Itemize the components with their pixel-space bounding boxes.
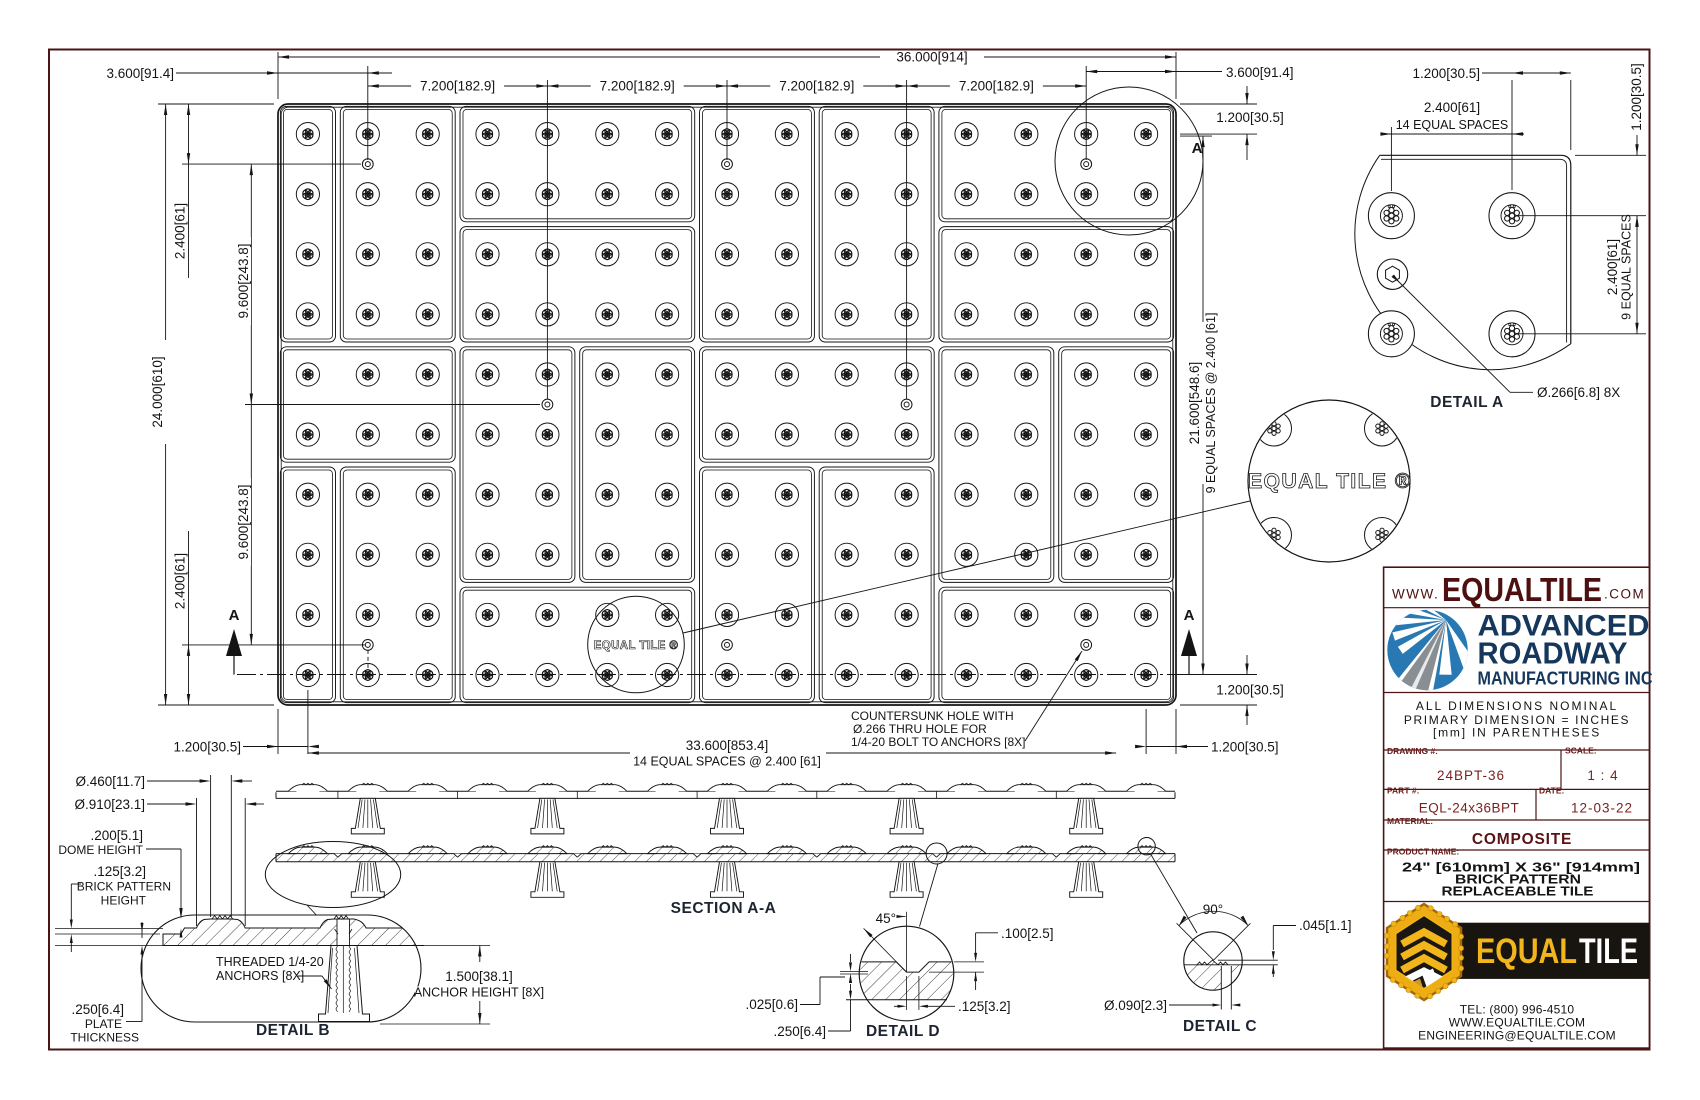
- svg-text:24.000[610]: 24.000[610]: [150, 356, 165, 427]
- svg-text:.250[6.4]: .250[6.4]: [71, 1002, 124, 1017]
- svg-text:2.400[61]: 2.400[61]: [1605, 239, 1620, 295]
- svg-text:DETAIL A: DETAIL A: [1430, 394, 1503, 411]
- svg-text:THICKNESS: THICKNESS: [70, 1031, 139, 1045]
- svg-text:DATE:: DATE:: [1539, 786, 1565, 796]
- svg-text:1.500[38.1]: 1.500[38.1]: [445, 969, 513, 984]
- svg-text:24BPT-36: 24BPT-36: [1437, 768, 1505, 783]
- svg-text:ENGINEERING@EQUALTILE.COM: ENGINEERING@EQUALTILE.COM: [1418, 1029, 1616, 1043]
- svg-text:1/4-20 BOLT TO ANCHORS [8X]: 1/4-20 BOLT TO ANCHORS [8X]: [851, 735, 1026, 749]
- svg-text:1.200[30.5]: 1.200[30.5]: [173, 740, 241, 755]
- svg-text:1.200[30.5]: 1.200[30.5]: [1216, 683, 1284, 698]
- svg-text:DETAIL D: DETAIL D: [866, 1023, 940, 1040]
- svg-text:SECTION A-A: SECTION A-A: [671, 900, 777, 917]
- svg-text:WWW.EQUALTILE.COM: WWW.EQUALTILE.COM: [1449, 1016, 1586, 1030]
- svg-text:Ø.266[6.8] 8X: Ø.266[6.8] 8X: [1537, 385, 1620, 400]
- svg-text:90°: 90°: [1203, 902, 1223, 917]
- svg-text:Ø.910[23.1]: Ø.910[23.1]: [74, 797, 145, 812]
- svg-text:7.200[182.9]: 7.200[182.9]: [600, 79, 675, 94]
- svg-text:14 EQUAL SPACES @ 2.400 [61]: 14 EQUAL SPACES @ 2.400 [61]: [633, 755, 821, 769]
- svg-text:ANCHORS [8X]: ANCHORS [8X]: [216, 969, 304, 983]
- svg-text:12-03-22: 12-03-22: [1571, 801, 1633, 816]
- svg-text:2.400[61]: 2.400[61]: [1424, 100, 1480, 115]
- svg-text:EQUAL: EQUAL: [1476, 932, 1577, 971]
- svg-text:PLATE: PLATE: [85, 1017, 122, 1031]
- svg-text:MATERIAL:: MATERIAL:: [1387, 816, 1433, 826]
- svg-text:ANCHOR HEIGHT [8X]: ANCHOR HEIGHT [8X]: [414, 986, 544, 1000]
- svg-text:7.200[182.9]: 7.200[182.9]: [959, 79, 1034, 94]
- svg-text:.250[6.4]: .250[6.4]: [773, 1024, 826, 1039]
- svg-text:PRODUCT NAME:: PRODUCT NAME:: [1387, 847, 1459, 857]
- svg-text:1 : 4: 1 : 4: [1587, 768, 1618, 783]
- svg-text:A: A: [1192, 140, 1203, 157]
- svg-text:ROADWAY: ROADWAY: [1478, 636, 1628, 671]
- svg-text:DETAIL B: DETAIL B: [256, 1022, 330, 1039]
- svg-text:DRAWING #:: DRAWING #:: [1387, 746, 1438, 756]
- svg-text:9 EQUAL SPACES @ 2.400 [61]: 9 EQUAL SPACES @ 2.400 [61]: [1204, 313, 1218, 494]
- svg-text:3.600[91.4]: 3.600[91.4]: [106, 66, 174, 81]
- svg-text:THREADED 1/4-20: THREADED 1/4-20: [216, 955, 324, 969]
- svg-text:COUNTERSUNK HOLE WITH: COUNTERSUNK HOLE WITH: [851, 709, 1014, 723]
- svg-text:DOME HEIGHT: DOME HEIGHT: [58, 843, 143, 857]
- svg-text:14 EQUAL SPACES: 14 EQUAL SPACES: [1396, 118, 1509, 132]
- svg-text:.200[5.1]: .200[5.1]: [90, 828, 143, 843]
- svg-text:REPLACEABLE TILE: REPLACEABLE TILE: [1442, 884, 1594, 899]
- svg-text:COMPOSITE: COMPOSITE: [1472, 831, 1572, 848]
- svg-text:.100[2.5]: .100[2.5]: [1001, 926, 1054, 941]
- svg-text:1.200[30.5]: 1.200[30.5]: [1629, 63, 1644, 131]
- svg-text:45°: 45°: [876, 911, 896, 926]
- svg-text:2.400[61]: 2.400[61]: [173, 553, 188, 609]
- svg-text:3.600[91.4]: 3.600[91.4]: [1226, 65, 1294, 80]
- svg-text:7.200[182.9]: 7.200[182.9]: [779, 79, 854, 94]
- svg-text:TEL: (800) 996-4510: TEL: (800) 996-4510: [1460, 1003, 1575, 1017]
- svg-text:A: A: [1184, 607, 1195, 624]
- svg-text:DETAIL C: DETAIL C: [1183, 1018, 1257, 1035]
- svg-text:9 EQUAL SPACES: 9 EQUAL SPACES: [1620, 214, 1634, 320]
- svg-text:EQUAL TILE ®: EQUAL TILE ®: [594, 640, 679, 652]
- svg-text:.COM: .COM: [1604, 587, 1645, 602]
- svg-text:Ø.090[2.3]: Ø.090[2.3]: [1104, 998, 1167, 1013]
- svg-text:.125[3.2]: .125[3.2]: [93, 864, 146, 879]
- svg-text:EQUAL TILE ®: EQUAL TILE ®: [1248, 470, 1412, 493]
- svg-text:SCALE:: SCALE:: [1565, 746, 1597, 756]
- svg-text:ALL DIMENSIONS NOMINAL: ALL DIMENSIONS NOMINAL: [1416, 699, 1618, 713]
- svg-text:TILE: TILE: [1579, 932, 1638, 971]
- svg-text:A: A: [229, 607, 240, 624]
- svg-text:9.600[243.8]: 9.600[243.8]: [236, 484, 251, 559]
- svg-text:PART #:: PART #:: [1387, 786, 1420, 796]
- svg-text:[mm] IN PARENTHESES: [mm] IN PARENTHESES: [1433, 726, 1601, 740]
- svg-text:.025[0.6]: .025[0.6]: [745, 997, 798, 1012]
- svg-text:1.200[30.5]: 1.200[30.5]: [1211, 740, 1279, 755]
- svg-text:WWW.: WWW.: [1392, 587, 1439, 602]
- svg-text:1.200[30.5]: 1.200[30.5]: [1216, 110, 1284, 125]
- svg-text:MANUFACTURING INC: MANUFACTURING INC: [1478, 668, 1653, 689]
- svg-text:Ø.460[11.7]: Ø.460[11.7]: [75, 774, 145, 789]
- svg-text:1.200[30.5]: 1.200[30.5]: [1412, 66, 1480, 81]
- svg-text:Ø.266 THRU HOLE FOR: Ø.266 THRU HOLE FOR: [853, 722, 987, 736]
- svg-text:9.600[243.8]: 9.600[243.8]: [236, 243, 251, 318]
- svg-text:EQL-24x36BPT: EQL-24x36BPT: [1419, 801, 1520, 816]
- svg-text:.045[1.1]: .045[1.1]: [1299, 918, 1352, 933]
- svg-text:7.200[182.9]: 7.200[182.9]: [420, 79, 495, 94]
- svg-text:2.400[61]: 2.400[61]: [173, 203, 188, 259]
- svg-text:36.000[914]: 36.000[914]: [896, 50, 967, 65]
- svg-text:BRICK PATTERN: BRICK PATTERN: [77, 880, 171, 894]
- svg-text:.125[3.2]: .125[3.2]: [958, 999, 1011, 1014]
- svg-text:HEIGHT: HEIGHT: [101, 894, 147, 908]
- svg-text:33.600[853.4]: 33.600[853.4]: [686, 738, 769, 753]
- svg-text:EQUALTILE: EQUALTILE: [1442, 571, 1602, 608]
- svg-text:21.600[548.6]: 21.600[548.6]: [1187, 362, 1202, 445]
